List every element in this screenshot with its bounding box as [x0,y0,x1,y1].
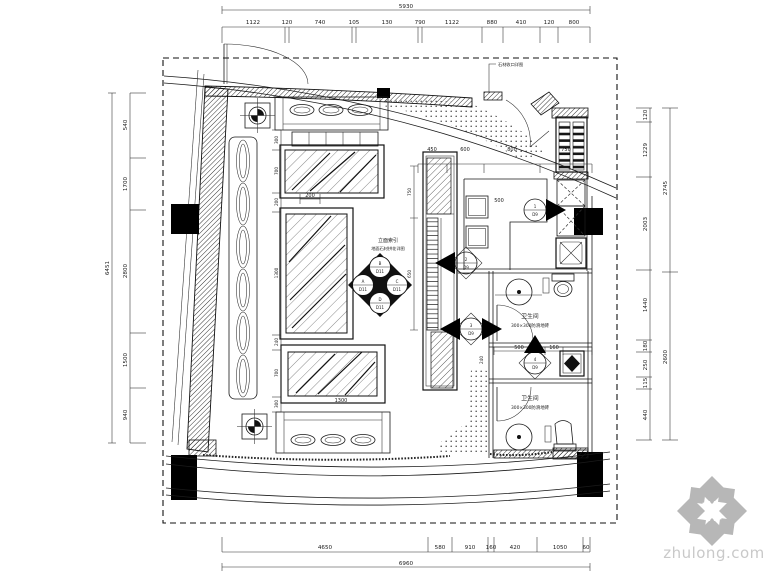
dim-top-8: 410 [516,20,527,26]
coffee-table-2 [280,208,353,339]
dim-int-bar-1: 650 [407,270,412,278]
dim-int-left-3: 1300 [274,267,279,278]
survey-point-bottom [237,409,272,444]
index-title-1: 立面索引 [378,237,398,244]
dim-left-total: 6451 [105,260,111,275]
facade-bottom [166,452,610,505]
dim-int-left-0: 300 [274,136,279,144]
sink-unit [556,238,586,268]
dim-right-7: 440 [643,409,649,420]
elevation-marker-2: 2 D9 [435,247,482,279]
callout-bottom-sheet: D11 [376,305,385,310]
dim-top-2: 740 [315,20,326,26]
dim-bottom-total: 6960 [399,561,414,567]
dim-top-6: 1122 [445,20,459,26]
dim-int-left-4: 240 [274,338,279,346]
marker1-num: 1 [534,204,537,209]
floor-plan-svg: 卫生间 300×300防滑地砖 500 160 240 卫生间 300×300防… [0,0,780,585]
callout-right-sheet: D11 [393,287,402,292]
dim-int-left-6: 300 [274,400,279,408]
callout-top-sheet: D11 [376,269,385,274]
detail-callout: 立面索引 地面石材拼花详图 B D11 A D11 C D11 D D11 [348,237,412,317]
dim-int-top-3: 750 [561,147,571,153]
dim-bottom-3: 160 [486,545,497,551]
dim-bottom-2: 910 [465,545,476,551]
dim-int-stool: 500 [494,198,504,204]
dim-chain-bottom: 4650 580 910 160 420 1050 60 6960 [222,537,590,571]
dim-left-0: 540 [123,119,129,130]
dim-int-top-2: 800 [507,147,517,153]
dim-corridor-0: 240 [479,356,484,364]
watermark-logo [677,476,747,546]
marker1-sheet: D9 [532,212,538,217]
dim-corridor-1: 500 [514,345,524,351]
dim-bottom-5: 1050 [553,545,568,551]
service-counter [464,179,547,270]
dim-chain-top: 5930 1122 120 740 105 130 790 1122 880 4… [222,4,590,43]
dim-top-0: 1122 [246,20,260,26]
room-label-toilet-upper: 卫生间 [521,312,539,320]
callout-right-num: C [396,279,399,284]
dim-right-outer-0: 2745 [663,180,669,195]
index-title-2: 地面石材拼花详图 [371,245,405,252]
dim-top-total: 5930 [399,4,414,10]
dim-right-5: 250 [643,359,649,370]
dim-chain-right: 120 1229 2003 1440 180 250 115 440 2745 … [636,108,678,440]
dim-right-outer-1: 2600 [663,349,669,364]
decor-screen [229,137,257,399]
dim-int-top-1: 600 [460,147,470,153]
dim-top-9: 120 [544,20,555,26]
dim-int-table: 1300 [335,398,348,404]
coffee-table-1 [280,145,384,198]
sofa-top [275,97,388,146]
dim-right-0: 120 [643,109,649,120]
dim-right-3: 1440 [643,297,649,312]
dim-top-1: 120 [282,20,293,26]
dim-bottom-1: 580 [435,545,446,551]
exterior-curves [164,70,616,445]
dim-left-2: 2800 [123,263,129,278]
dim-int-bar-0: 750 [407,188,412,196]
column-left-bottom [171,455,197,500]
marker3-sheet: D9 [468,331,474,336]
callout-left-num: A [362,279,365,284]
marker4-num: 4 [534,357,537,362]
elevation-marker-4: 4 D9 [519,335,551,379]
sofa-bottom [276,412,390,453]
toilet-room-lower: 卫生间 300×300防滑地砖 [494,387,588,458]
dim-right-1: 1229 [643,142,649,157]
column-right-mid [574,208,603,235]
marker4-sheet: D9 [532,365,538,370]
entry-note: 石材收口详图 [489,61,523,93]
stools [466,196,488,248]
floor-drain [560,351,584,376]
dim-top-3: 105 [349,20,360,26]
entry-door-left [224,44,308,84]
elevation-marker-1: 1 D9 [524,199,566,221]
dim-int-left-2: 200 [274,198,279,206]
dim-corridor-2: 160 [549,345,559,351]
dim-chain-left: 6451 540 1700 2800 1500 940 [105,93,146,443]
coffee-table-3 [281,345,385,403]
dim-int-gap: 200 [305,193,315,199]
dim-left-1: 1700 [123,176,129,191]
dim-left-4: 940 [123,409,129,420]
dim-right-2: 2003 [643,216,649,231]
dim-bottom-0: 4650 [318,545,333,551]
dim-right-6: 115 [643,377,649,388]
room-finish-toilet-lower: 300×300防滑地砖 [511,404,550,411]
dim-int-left-5: 700 [274,369,279,377]
column-left-top [171,204,199,234]
callout-left-sheet: D11 [359,287,368,292]
room-finish-toilet-upper: 300×300防滑地砖 [511,322,550,329]
dim-int-top-0: 450 [427,147,437,153]
callout-bottom-num: D [378,297,381,302]
dim-int-left-1: 700 [274,167,279,175]
dim-top-7: 880 [487,20,498,26]
survey-point-top [240,98,275,133]
marker2-num: 2 [465,257,468,262]
dim-bottom-6: 60 [582,545,590,551]
dim-top-4: 130 [382,20,393,26]
dim-top-5: 790 [415,20,426,26]
watermark-text: zhulong.com [663,544,765,562]
dim-right-4: 180 [643,340,649,351]
entry-note-text: 石材收口详图 [498,61,523,68]
dim-left-3: 1500 [123,352,129,367]
dim-bottom-4: 420 [510,545,521,551]
dim-top-10: 800 [569,20,580,26]
column-right-bottom [577,452,603,497]
callout-top-num: B [379,261,382,266]
marker3-num: 3 [470,323,473,328]
marker2-sheet: D9 [463,265,469,270]
